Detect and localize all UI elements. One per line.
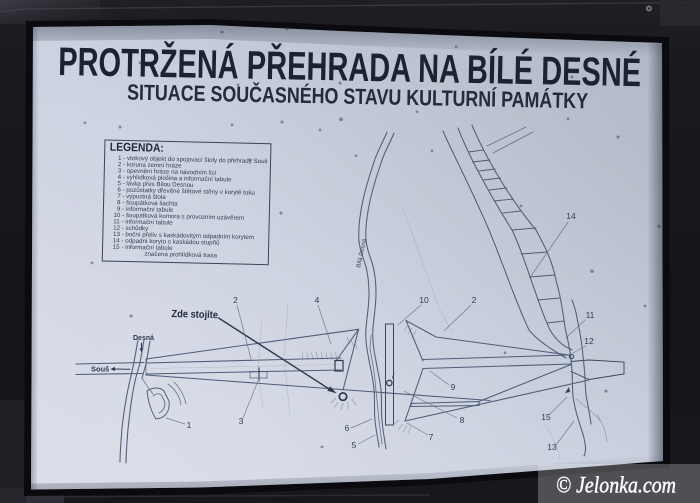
svg-text:2: 2 (233, 295, 238, 305)
svg-text:15: 15 (541, 412, 551, 422)
svg-text:5: 5 (352, 440, 357, 450)
svg-text:10: 10 (419, 295, 429, 305)
svg-text:LEGENDA:: LEGENDA: (110, 141, 164, 155)
svg-text:9: 9 (451, 382, 456, 392)
svg-text:6: 6 (345, 423, 350, 433)
svg-text:Zde stojíte: Zde stojíte (171, 309, 218, 321)
svg-text:13: 13 (547, 442, 557, 452)
svg-text:2: 2 (472, 295, 477, 305)
svg-text:8: 8 (460, 415, 465, 425)
svg-text:4: 4 (315, 295, 320, 305)
svg-text:1: 1 (187, 420, 192, 430)
svg-text:7: 7 (429, 432, 434, 442)
svg-text:© Jelonka.com: © Jelonka.com (556, 473, 676, 498)
svg-text:14: 14 (566, 211, 576, 221)
svg-text:11: 11 (586, 310, 595, 320)
svg-text:Souš: Souš (91, 365, 109, 374)
svg-text:12: 12 (584, 336, 594, 346)
